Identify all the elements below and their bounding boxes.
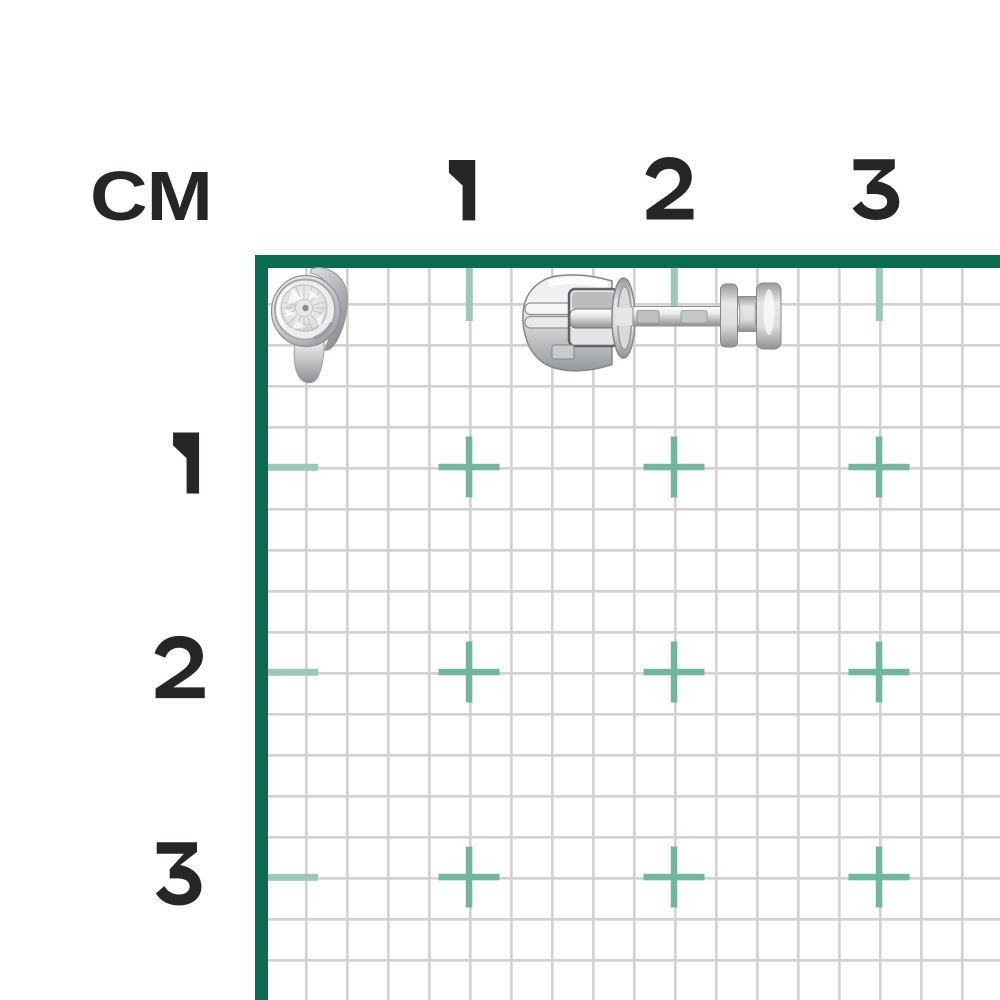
svg-text:СМ: СМ xyxy=(90,157,213,235)
